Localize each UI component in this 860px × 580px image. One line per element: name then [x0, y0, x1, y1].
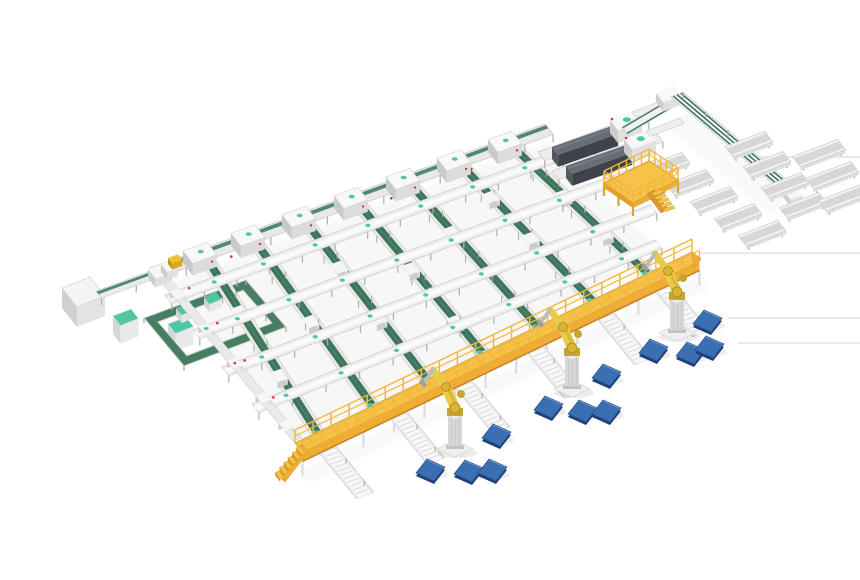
factory-scene	[0, 0, 860, 580]
tote-cabinet	[113, 309, 138, 344]
control-cabinet	[62, 277, 105, 327]
discharge-tray	[738, 220, 786, 249]
pallet	[416, 459, 448, 484]
pallet	[592, 400, 624, 425]
discharge-tray	[690, 186, 738, 215]
factory-render-svg	[0, 0, 860, 580]
pallet	[534, 396, 566, 421]
pallet	[482, 424, 514, 449]
pallet	[592, 364, 624, 389]
pallet	[478, 459, 510, 484]
discharge-tray	[714, 203, 762, 232]
